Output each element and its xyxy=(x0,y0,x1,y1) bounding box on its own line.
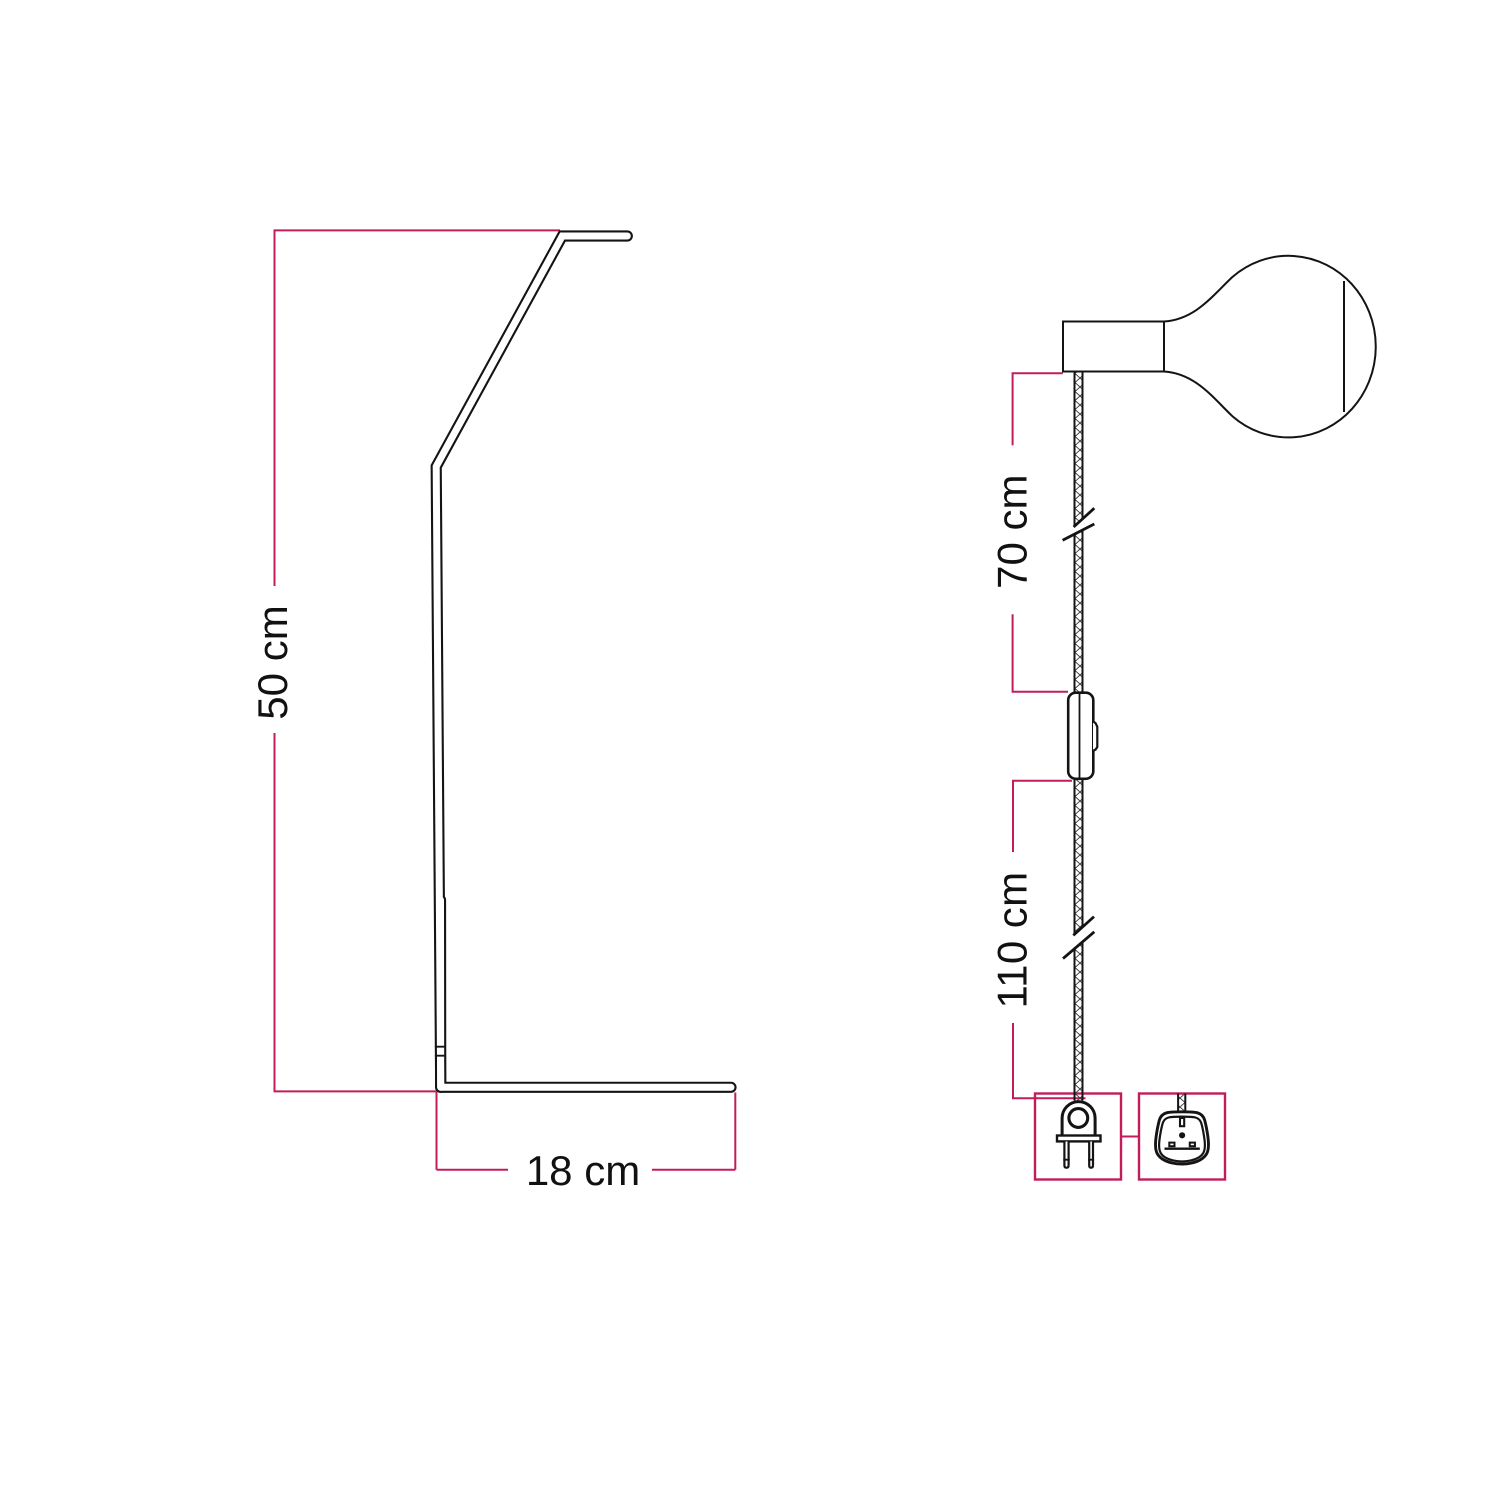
svg-text:70 cm: 70 cm xyxy=(989,475,1036,589)
svg-text:50 cm: 50 cm xyxy=(249,605,296,719)
svg-text:18 cm: 18 cm xyxy=(526,1147,640,1194)
svg-text:110 cm: 110 cm xyxy=(989,871,1036,1008)
